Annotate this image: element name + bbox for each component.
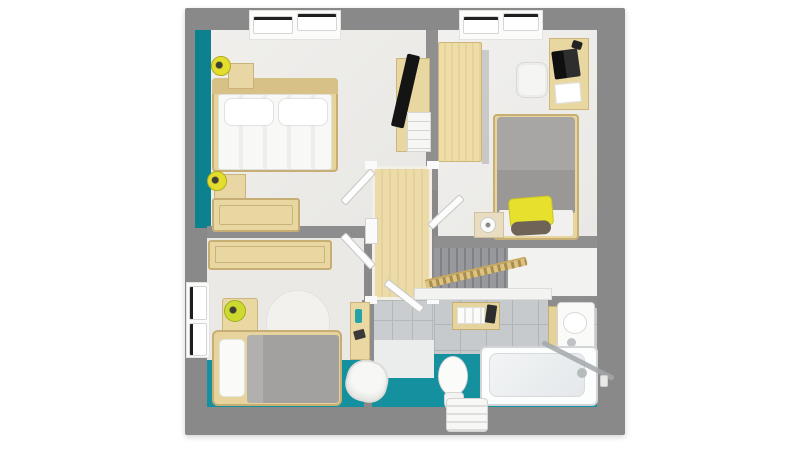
window-left-sash-bottom <box>189 323 207 356</box>
bedroom1-tv-drawers <box>407 112 431 152</box>
door-jamb-northeast <box>427 161 439 169</box>
bedroom3-lamp <box>224 300 246 322</box>
bathroom-radiator <box>446 398 488 432</box>
bathroom-shelf-towels <box>457 307 485 324</box>
door-center-post <box>365 218 378 244</box>
bedroom1-nightstand-north <box>228 63 254 89</box>
window-top-right-sash-left <box>463 16 499 34</box>
bathroom-toilet-bowl <box>438 356 468 396</box>
window-top-left-sash-left <box>253 16 293 34</box>
floor-plan-render <box>0 0 800 450</box>
bedroom2-pillow-dark <box>511 220 552 236</box>
bathroom-sink-basin <box>563 312 587 334</box>
door-jamb-northwest <box>365 161 377 169</box>
bedroom2-wardrobe-shadow <box>482 50 489 164</box>
window-top-right-sash-right <box>503 13 539 31</box>
bedroom1-accent-wall <box>195 30 211 228</box>
bedroom1-lamp-south <box>207 171 227 191</box>
bathroom-bathtub-faucet <box>577 368 587 378</box>
landing-floor <box>372 166 432 300</box>
bedroom2-wardrobe <box>438 42 482 162</box>
stairs-ledge <box>414 288 552 300</box>
bedroom3-bed-duvet <box>247 335 339 403</box>
window-top-left-sash-right <box>297 13 337 31</box>
bedroom1-lamp-north <box>211 56 231 76</box>
bedroom3-dresser-panel <box>215 246 325 263</box>
bedroom2-laptop <box>551 48 581 79</box>
bedroom2-papers <box>554 82 582 104</box>
bathroom-wall-hook <box>600 375 608 387</box>
bedroom2-clock <box>480 217 496 233</box>
bedroom1-bed-pillow-left <box>224 98 274 126</box>
walkway-tile-floor <box>372 300 434 340</box>
bedroom1-bed-pillow-right <box>278 98 328 126</box>
bedroom2-chair <box>516 62 548 98</box>
bedroom1-chest-panel <box>219 205 293 225</box>
bedroom3-bed-pillow <box>219 339 245 397</box>
bedroom3-shelf-bottle <box>355 309 362 323</box>
floor-plan <box>0 0 800 450</box>
window-left-sash-top <box>189 286 207 320</box>
